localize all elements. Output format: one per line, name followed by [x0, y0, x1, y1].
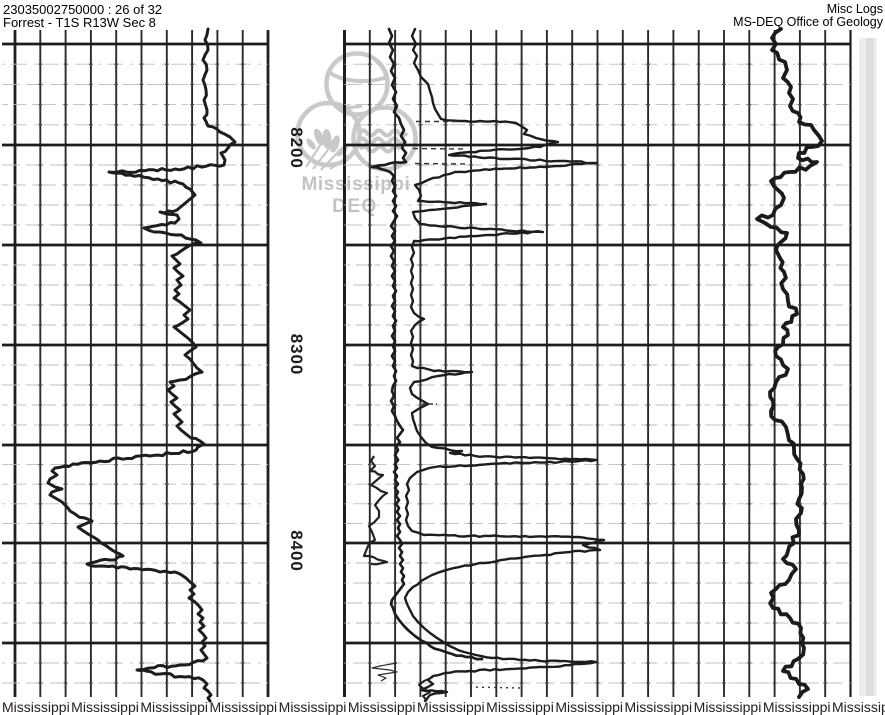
- svg-text:8200: 8200: [287, 127, 306, 168]
- svg-text:DEQ: DEQ: [332, 196, 378, 217]
- svg-text:8300: 8300: [287, 334, 306, 375]
- svg-text:8400: 8400: [287, 530, 306, 571]
